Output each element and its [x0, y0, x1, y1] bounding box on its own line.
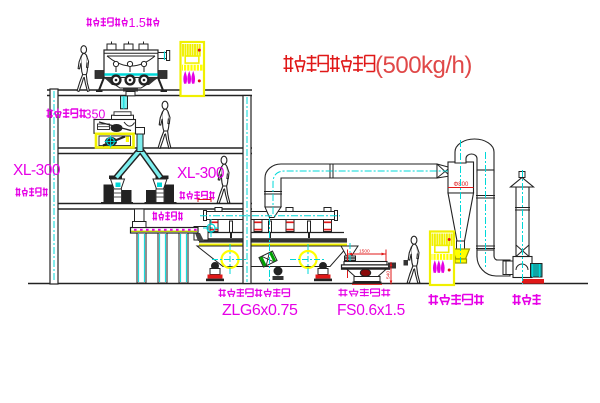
svg-text:540: 540 — [386, 271, 392, 279]
svg-text:350: 350 — [85, 108, 106, 122]
svg-text:Φ800: Φ800 — [454, 182, 469, 188]
svg-text:1500: 1500 — [359, 249, 370, 255]
svg-text:1.5: 1.5 — [129, 16, 146, 30]
svg-text:ZLG6x0.75: ZLG6x0.75 — [222, 302, 298, 319]
svg-text:(500kg/h): (500kg/h) — [375, 52, 472, 79]
svg-text:XL-300: XL-300 — [177, 165, 225, 182]
svg-text:FS0.6x1.5: FS0.6x1.5 — [337, 302, 405, 319]
svg-text:XL-300: XL-300 — [13, 162, 61, 179]
